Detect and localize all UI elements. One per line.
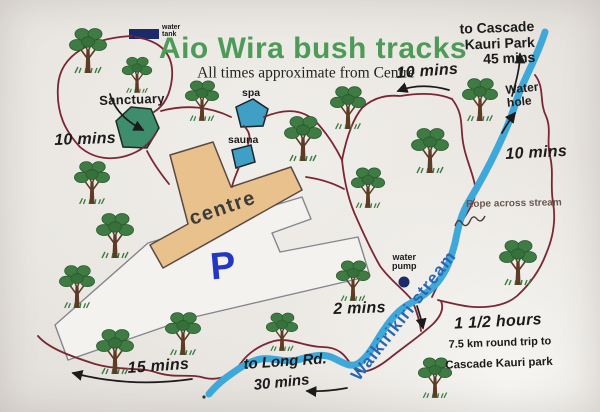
ten-mins-west-label: 10 mins xyxy=(54,130,116,149)
water-pump-label: water pump xyxy=(392,253,417,272)
tree-icon xyxy=(165,313,200,355)
track-east-of-stream xyxy=(438,75,554,307)
tree-icon xyxy=(462,79,497,121)
tree-icon xyxy=(285,117,322,162)
rope-label: Rope across stream xyxy=(466,198,562,210)
water-pump-dot xyxy=(399,277,410,288)
tree-icon xyxy=(74,162,109,204)
tree-icon xyxy=(122,57,152,93)
bush-tracks-map: Aio Wira bush tracks All times approxima… xyxy=(0,0,600,412)
water-tank xyxy=(129,29,159,39)
tree-icon xyxy=(70,29,107,74)
track-sanctuary-to-spa xyxy=(161,107,231,117)
tree-icon xyxy=(500,241,537,286)
ten-mins-east-label: 10 mins xyxy=(505,143,568,163)
two-mins-label: 2 mins xyxy=(333,299,386,318)
spa-building xyxy=(236,99,268,127)
map-subtitle: All times approximate from Centre xyxy=(197,66,415,83)
cascade-dest-label: to Cascade Kauri Park 45 mins xyxy=(448,19,536,69)
sanctuary-label: Sanctuary xyxy=(99,92,165,108)
tree-icon xyxy=(97,214,134,259)
map-title: Aio Wira bush tracks xyxy=(159,33,467,65)
stream-end-dot xyxy=(202,395,205,398)
spa-label: spa xyxy=(242,88,260,99)
track-sanctuary-to-centre xyxy=(147,151,169,184)
water-tank-label: water tank xyxy=(162,24,180,39)
tree-icon xyxy=(412,129,449,174)
sauna-label: sauna xyxy=(228,135,258,146)
track-centre-link xyxy=(306,177,344,189)
tree-icon xyxy=(330,87,365,129)
tree-icon xyxy=(266,313,297,351)
arrow-thirty-mins xyxy=(307,388,347,391)
water-hole-label: Water hole xyxy=(505,81,540,109)
tree-icon xyxy=(185,81,218,121)
arrow-ten-mins-top xyxy=(398,86,449,91)
parking-p-label: P xyxy=(209,245,238,288)
tree-icon xyxy=(351,168,384,208)
sauna-building xyxy=(232,145,255,168)
